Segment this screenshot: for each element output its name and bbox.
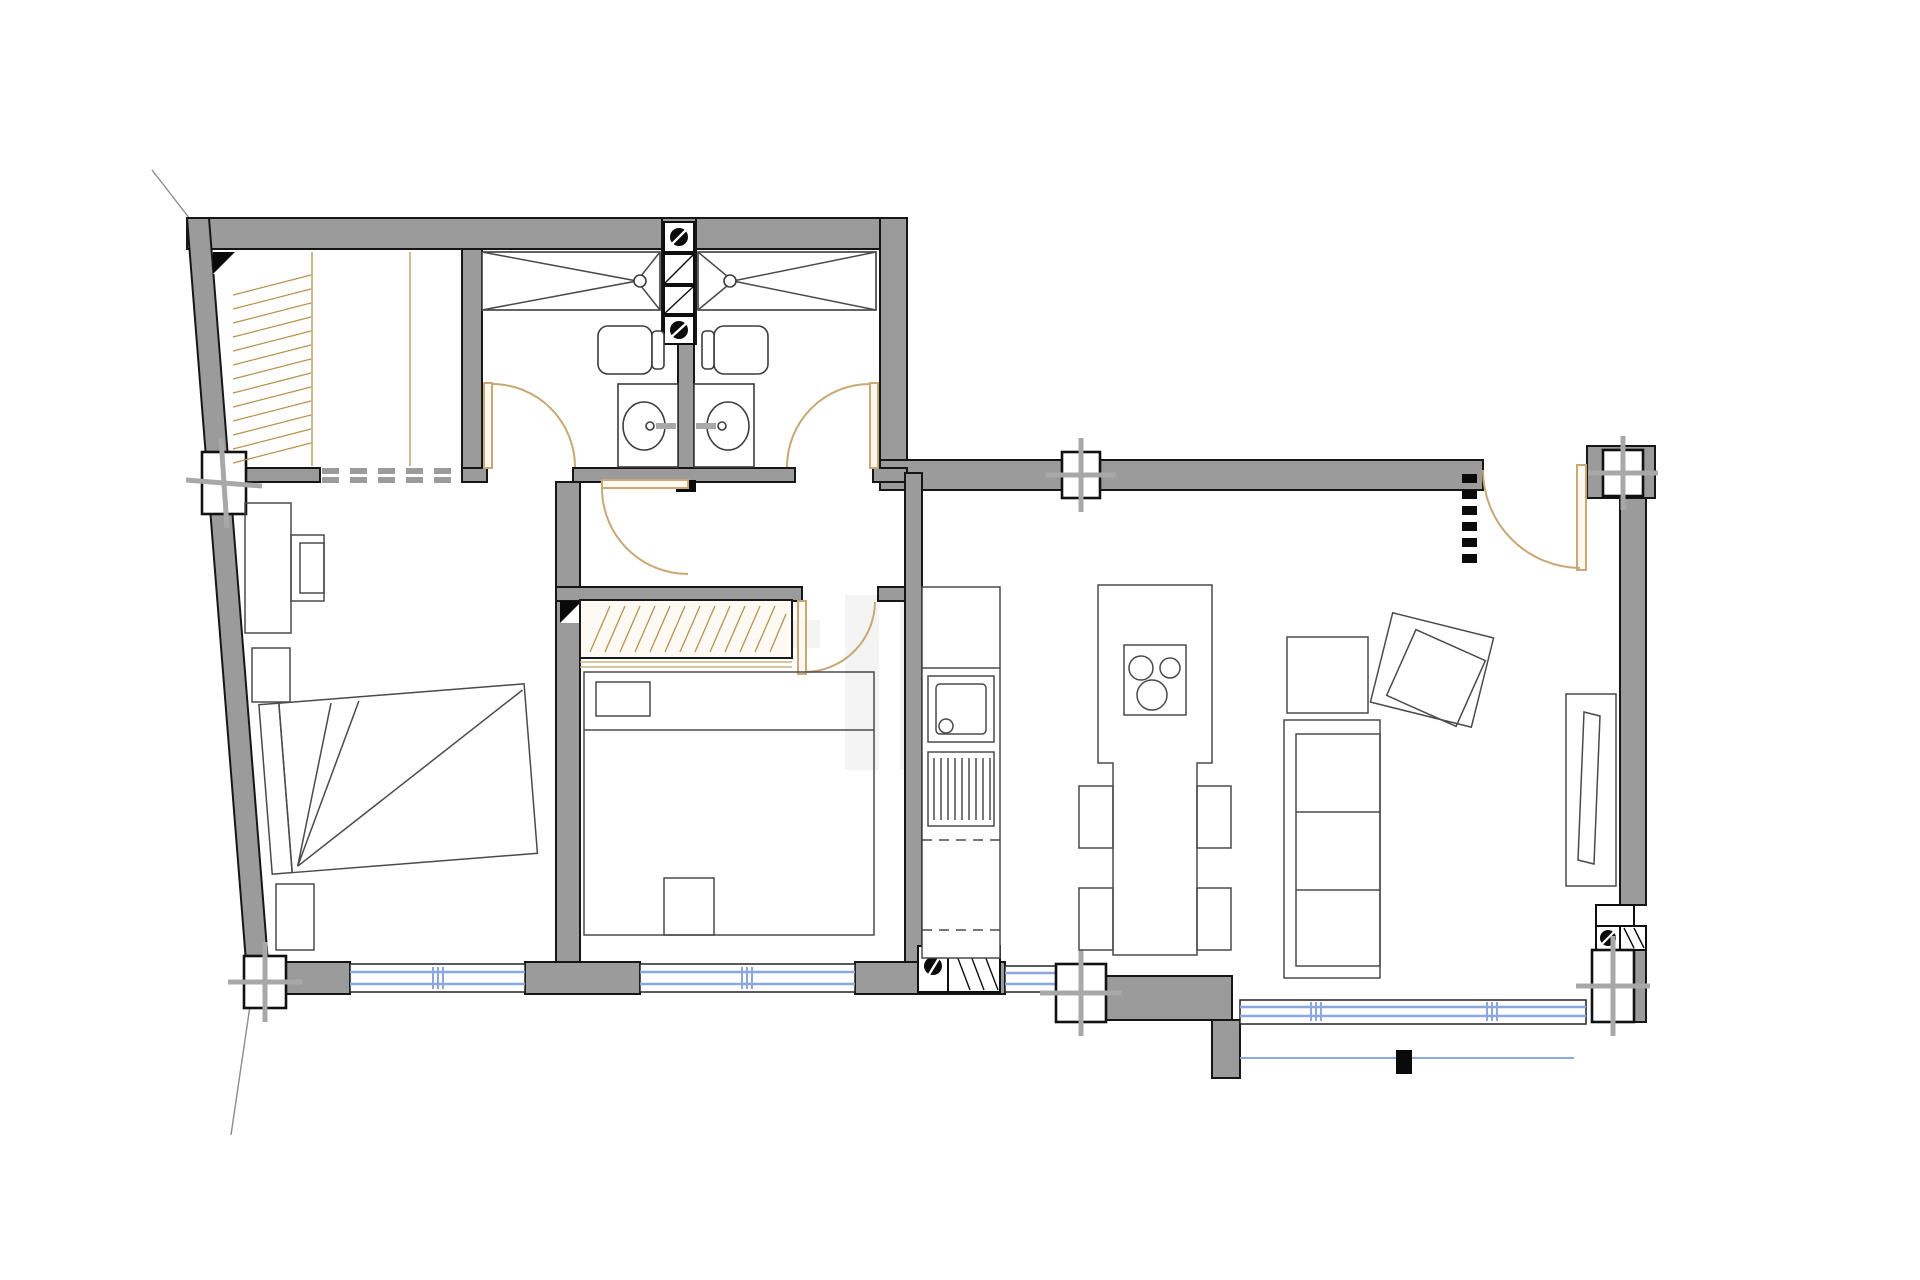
nightstand-bottom bbox=[276, 884, 314, 950]
wardrobe-closet bbox=[233, 252, 410, 466]
door-entry bbox=[1483, 465, 1586, 570]
kitchen-units bbox=[922, 587, 1000, 958]
boundary-line-bottom-left bbox=[231, 1006, 250, 1135]
bedroom-second-furniture bbox=[584, 672, 874, 935]
bed-second bbox=[584, 672, 874, 935]
nightstand-top bbox=[252, 648, 290, 702]
wall-bedroom2-top-stub bbox=[878, 587, 907, 601]
boundary-line-top-left bbox=[152, 170, 190, 219]
wall-bathroom-right bbox=[880, 218, 907, 490]
wall-top bbox=[187, 218, 907, 249]
sofa bbox=[1284, 720, 1380, 978]
bed-main bbox=[259, 684, 538, 874]
door-bathroom-left bbox=[484, 383, 575, 468]
kitchen-island-dining bbox=[1079, 585, 1231, 955]
desk bbox=[245, 503, 291, 633]
dining-chair-4 bbox=[1197, 888, 1231, 950]
toilet-left bbox=[598, 326, 664, 374]
wall-closet-right bbox=[462, 249, 482, 468]
dashed-wall-opening bbox=[322, 471, 462, 480]
tv-sideboard bbox=[1566, 694, 1616, 886]
tv-screen bbox=[1578, 712, 1600, 864]
floor-plan-canvas bbox=[0, 0, 1920, 1280]
dining-chair-3 bbox=[1197, 786, 1231, 848]
wall-bottom-seg-4 bbox=[1106, 976, 1232, 1020]
wall-entry-top bbox=[880, 460, 1483, 490]
desk-chair-seat bbox=[300, 543, 324, 593]
wall-bottom-seg-2 bbox=[525, 962, 640, 994]
living-room-furniture bbox=[1284, 613, 1616, 978]
column-bottom-middle bbox=[1040, 950, 1122, 1036]
washbasin-right bbox=[694, 384, 754, 467]
door-bathroom-right bbox=[787, 383, 878, 468]
wall-bottom-step-leg bbox=[1212, 1020, 1240, 1078]
shower-left bbox=[482, 252, 660, 310]
railing-post bbox=[1396, 1050, 1412, 1074]
armchair bbox=[1287, 637, 1368, 713]
door-hallway bbox=[602, 480, 688, 574]
wall-corridor-seg-2 bbox=[462, 468, 487, 482]
wardrobe-bedroom-second bbox=[580, 600, 792, 667]
wall-corridor-seg-4 bbox=[873, 468, 907, 482]
angled-armchair bbox=[1370, 613, 1493, 727]
balcony-railing bbox=[1240, 1050, 1574, 1074]
wall-right bbox=[1620, 498, 1646, 905]
column-entry-wall bbox=[1046, 438, 1116, 512]
wall-kitchen bbox=[905, 473, 922, 962]
toilet-right bbox=[702, 326, 768, 374]
floor-plan-drawing bbox=[0, 0, 1920, 1280]
window-small bbox=[1005, 966, 1056, 992]
desk-chair bbox=[291, 535, 324, 601]
dining-chair-1 bbox=[1079, 786, 1113, 848]
column-bottom-left bbox=[228, 942, 302, 1022]
bed-second-bench bbox=[664, 878, 714, 935]
shower-right bbox=[698, 252, 876, 310]
shaft-right bbox=[1596, 905, 1646, 950]
wall-bedroom2-top bbox=[556, 587, 802, 601]
bedroom-main-furniture bbox=[245, 503, 537, 950]
washbasin-left bbox=[618, 384, 678, 467]
bed-main-headboard bbox=[259, 703, 292, 874]
wall-bedroom-divider bbox=[556, 482, 580, 962]
dining-chair-2 bbox=[1079, 888, 1113, 950]
shaft-center bbox=[664, 222, 694, 344]
wall-bottom-seg-1 bbox=[286, 962, 350, 994]
window-living bbox=[1240, 1000, 1586, 1024]
bed-second-pillow bbox=[596, 682, 650, 716]
bed-main-mattress bbox=[279, 684, 538, 873]
wall-left-slanted bbox=[187, 218, 268, 962]
wall-bathroom-divider bbox=[678, 344, 694, 468]
column-left-wall bbox=[186, 438, 262, 528]
kitchen-island bbox=[1098, 585, 1212, 955]
